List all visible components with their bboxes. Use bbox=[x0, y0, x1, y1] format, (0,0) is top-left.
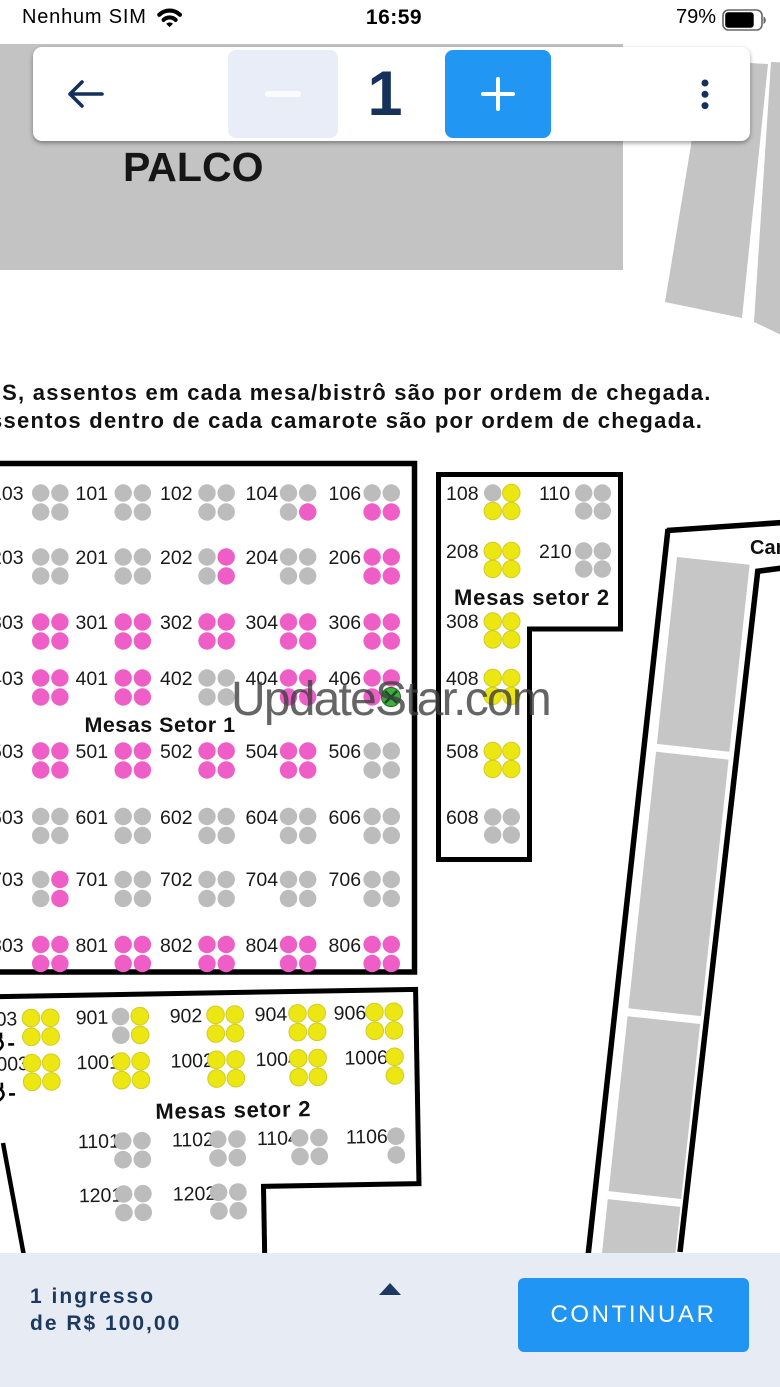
svg-text:501: 501 bbox=[76, 741, 109, 763]
svg-text:204: 204 bbox=[246, 547, 279, 569]
svg-text:202: 202 bbox=[160, 547, 193, 569]
svg-text:502: 502 bbox=[160, 741, 193, 763]
svg-text:Mesas setor 2: Mesas setor 2 bbox=[454, 585, 610, 610]
svg-text:602: 602 bbox=[160, 807, 193, 829]
svg-text:704: 704 bbox=[246, 869, 279, 891]
svg-text:703: 703 bbox=[0, 869, 24, 891]
svg-text:604: 604 bbox=[246, 807, 279, 829]
svg-text:102: 102 bbox=[160, 483, 193, 505]
svg-text:203: 203 bbox=[0, 547, 24, 569]
svg-text:1006: 1006 bbox=[344, 1047, 388, 1070]
svg-text:1106: 1106 bbox=[346, 1126, 388, 1149]
svg-text:806: 806 bbox=[329, 935, 362, 957]
svg-text:306: 306 bbox=[329, 612, 362, 634]
svg-text:503: 503 bbox=[0, 741, 24, 763]
svg-text:902: 902 bbox=[170, 1005, 203, 1028]
svg-text:PALCO: PALCO bbox=[123, 144, 263, 190]
svg-text:302: 302 bbox=[160, 612, 193, 634]
svg-text:ssentos dentro de cada camarot: ssentos dentro de cada camarote são por … bbox=[0, 408, 703, 433]
svg-text:201: 201 bbox=[76, 547, 109, 569]
svg-text:108: 108 bbox=[446, 483, 479, 505]
svg-text:608: 608 bbox=[446, 807, 479, 829]
svg-text:Camarote: Camarote bbox=[750, 537, 780, 559]
svg-text:103: 103 bbox=[0, 483, 24, 505]
svg-text:301: 301 bbox=[76, 612, 109, 634]
svg-text:601: 601 bbox=[76, 807, 109, 829]
svg-text:208: 208 bbox=[446, 541, 479, 563]
svg-text:508: 508 bbox=[446, 741, 479, 763]
svg-text:303: 303 bbox=[0, 612, 24, 634]
svg-text:402: 402 bbox=[160, 668, 193, 690]
svg-text:206: 206 bbox=[329, 547, 362, 569]
svg-text:Mesas Setor 1: Mesas Setor 1 bbox=[84, 713, 235, 737]
svg-text:1202: 1202 bbox=[173, 1183, 217, 1206]
svg-text:110: 110 bbox=[539, 483, 570, 505]
svg-text:606: 606 bbox=[329, 807, 362, 829]
svg-text:101: 101 bbox=[76, 483, 109, 505]
svg-text:706: 706 bbox=[329, 869, 362, 891]
svg-text:DS, assentos em cada mesa/bist: DS, assentos em cada mesa/bistrô são por… bbox=[0, 380, 712, 405]
svg-text:603: 603 bbox=[0, 807, 24, 829]
svg-text:401: 401 bbox=[76, 668, 109, 690]
svg-text:804: 804 bbox=[246, 935, 279, 957]
svg-text:802: 802 bbox=[160, 935, 193, 957]
svg-text:1102: 1102 bbox=[172, 1129, 214, 1152]
svg-text:308: 308 bbox=[446, 611, 479, 633]
svg-text:UpdateStar.com: UpdateStar.com bbox=[231, 673, 550, 726]
svg-text:701: 701 bbox=[76, 869, 109, 891]
svg-text:210: 210 bbox=[539, 541, 572, 563]
svg-text:304: 304 bbox=[246, 612, 279, 634]
svg-text:104: 104 bbox=[246, 483, 279, 505]
svg-text:504: 504 bbox=[246, 741, 279, 763]
svg-text:906: 906 bbox=[333, 1002, 366, 1025]
svg-text:803: 803 bbox=[0, 935, 24, 957]
svg-text:702: 702 bbox=[160, 869, 193, 891]
svg-text:903: 903 bbox=[0, 1008, 17, 1031]
svg-text:403: 403 bbox=[0, 668, 24, 690]
svg-text:Mesas setor 2: Mesas setor 2 bbox=[155, 1096, 311, 1124]
svg-text:1101: 1101 bbox=[78, 1131, 120, 1154]
svg-text:801: 801 bbox=[76, 935, 109, 957]
svg-text:901: 901 bbox=[76, 1007, 109, 1030]
svg-text:904: 904 bbox=[255, 1004, 288, 1027]
svg-text:506: 506 bbox=[329, 741, 362, 763]
svg-text:106: 106 bbox=[329, 483, 362, 505]
